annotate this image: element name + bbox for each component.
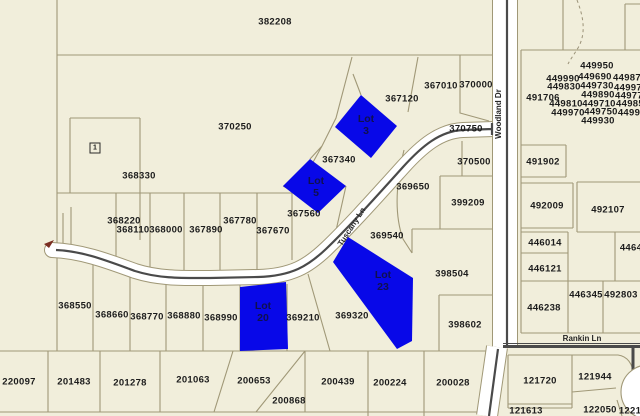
parcel-label-200439: 200439 xyxy=(321,377,355,387)
parcel-label-491902: 491902 xyxy=(526,157,560,167)
parcel-label-399209: 399209 xyxy=(451,198,485,208)
parcel-label-368880: 368880 xyxy=(167,311,201,321)
street-label-rankin-ln: Rankin Ln xyxy=(563,335,602,343)
parcel-label-398504: 398504 xyxy=(435,269,469,279)
parcel-label-368000: 368000 xyxy=(149,225,183,235)
lot-20-label: Lot20 xyxy=(255,300,271,324)
lot-23-label: Lot23 xyxy=(375,269,391,293)
parcel-label-370000: 370000 xyxy=(459,80,493,90)
parcel-label-446345: 446345 xyxy=(569,290,603,300)
parcel-label-446238: 446238 xyxy=(527,303,561,313)
parcel-label-122050: 122050 xyxy=(583,405,617,415)
parcel-label-368770: 368770 xyxy=(130,312,164,322)
parcel-label-492009: 492009 xyxy=(530,201,564,211)
parcel-label-201063: 201063 xyxy=(176,375,210,385)
parcel-label-367890: 367890 xyxy=(189,225,223,235)
label-layer: 3822083702503683303671203670103700003707… xyxy=(0,0,640,416)
parcel-label-200028: 200028 xyxy=(436,378,470,388)
parcel-label-369210: 369210 xyxy=(286,313,320,323)
parcel-label-449930: 449930 xyxy=(581,116,615,126)
parcel-label-4464: 4464 xyxy=(620,243,640,253)
parcel-label-200224: 200224 xyxy=(373,378,407,388)
parcel-label-4499: 4499 xyxy=(618,108,640,118)
parcel-label-369650: 369650 xyxy=(396,182,430,192)
street-label-woodland-dr: Woodland Dr xyxy=(495,89,503,139)
parcel-label-367670: 367670 xyxy=(256,226,290,236)
map-symbol-1: 1 xyxy=(90,143,101,154)
parcel-label-446121: 446121 xyxy=(528,264,562,274)
parcel-label-200653: 200653 xyxy=(237,376,271,386)
parcel-label-1221: 1221 xyxy=(619,406,640,416)
parcel-label-370500: 370500 xyxy=(457,157,491,167)
parcel-label-367010: 367010 xyxy=(424,81,458,91)
parcel-label-370250: 370250 xyxy=(218,122,252,132)
parcel-map-viewport[interactable]: 3822083702503683303671203670103700003707… xyxy=(0,0,640,416)
parcel-label-368660: 368660 xyxy=(95,310,129,320)
parcel-label-367120: 367120 xyxy=(385,94,419,104)
parcel-label-449830: 449830 xyxy=(547,82,581,92)
lot-5-label: Lot5 xyxy=(308,175,324,199)
parcel-label-449970: 449970 xyxy=(551,108,585,118)
parcel-label-121720: 121720 xyxy=(523,376,557,386)
parcel-label-398602: 398602 xyxy=(448,320,482,330)
parcel-label-446014: 446014 xyxy=(528,238,562,248)
parcel-label-367340: 367340 xyxy=(322,155,356,165)
parcel-label-368990: 368990 xyxy=(204,313,238,323)
parcel-label-121944: 121944 xyxy=(578,372,612,382)
parcel-label-369320: 369320 xyxy=(335,311,369,321)
parcel-label-492803: 492803 xyxy=(604,290,638,300)
parcel-label-201483: 201483 xyxy=(57,377,91,387)
parcel-label-200868: 200868 xyxy=(272,396,306,406)
parcel-label-121613: 121613 xyxy=(509,406,543,416)
parcel-label-382208: 382208 xyxy=(258,17,292,27)
parcel-label-370750: 370750 xyxy=(449,124,483,134)
parcel-label-367560: 367560 xyxy=(287,209,321,219)
parcel-label-368330: 368330 xyxy=(122,171,156,181)
parcel-label-220097: 220097 xyxy=(2,377,36,387)
parcel-label-449950: 449950 xyxy=(580,61,614,71)
parcel-label-367780: 367780 xyxy=(223,216,257,226)
parcel-label-368110: 368110 xyxy=(117,225,150,235)
parcel-label-369540: 369540 xyxy=(370,231,404,241)
street-label-tuscany-ln: Tuscany Ln xyxy=(337,206,368,247)
parcel-label-201278: 201278 xyxy=(113,378,147,388)
lot-3-label: Lot3 xyxy=(358,113,374,137)
parcel-label-368550: 368550 xyxy=(58,301,92,311)
parcel-label-492107: 492107 xyxy=(591,205,625,215)
